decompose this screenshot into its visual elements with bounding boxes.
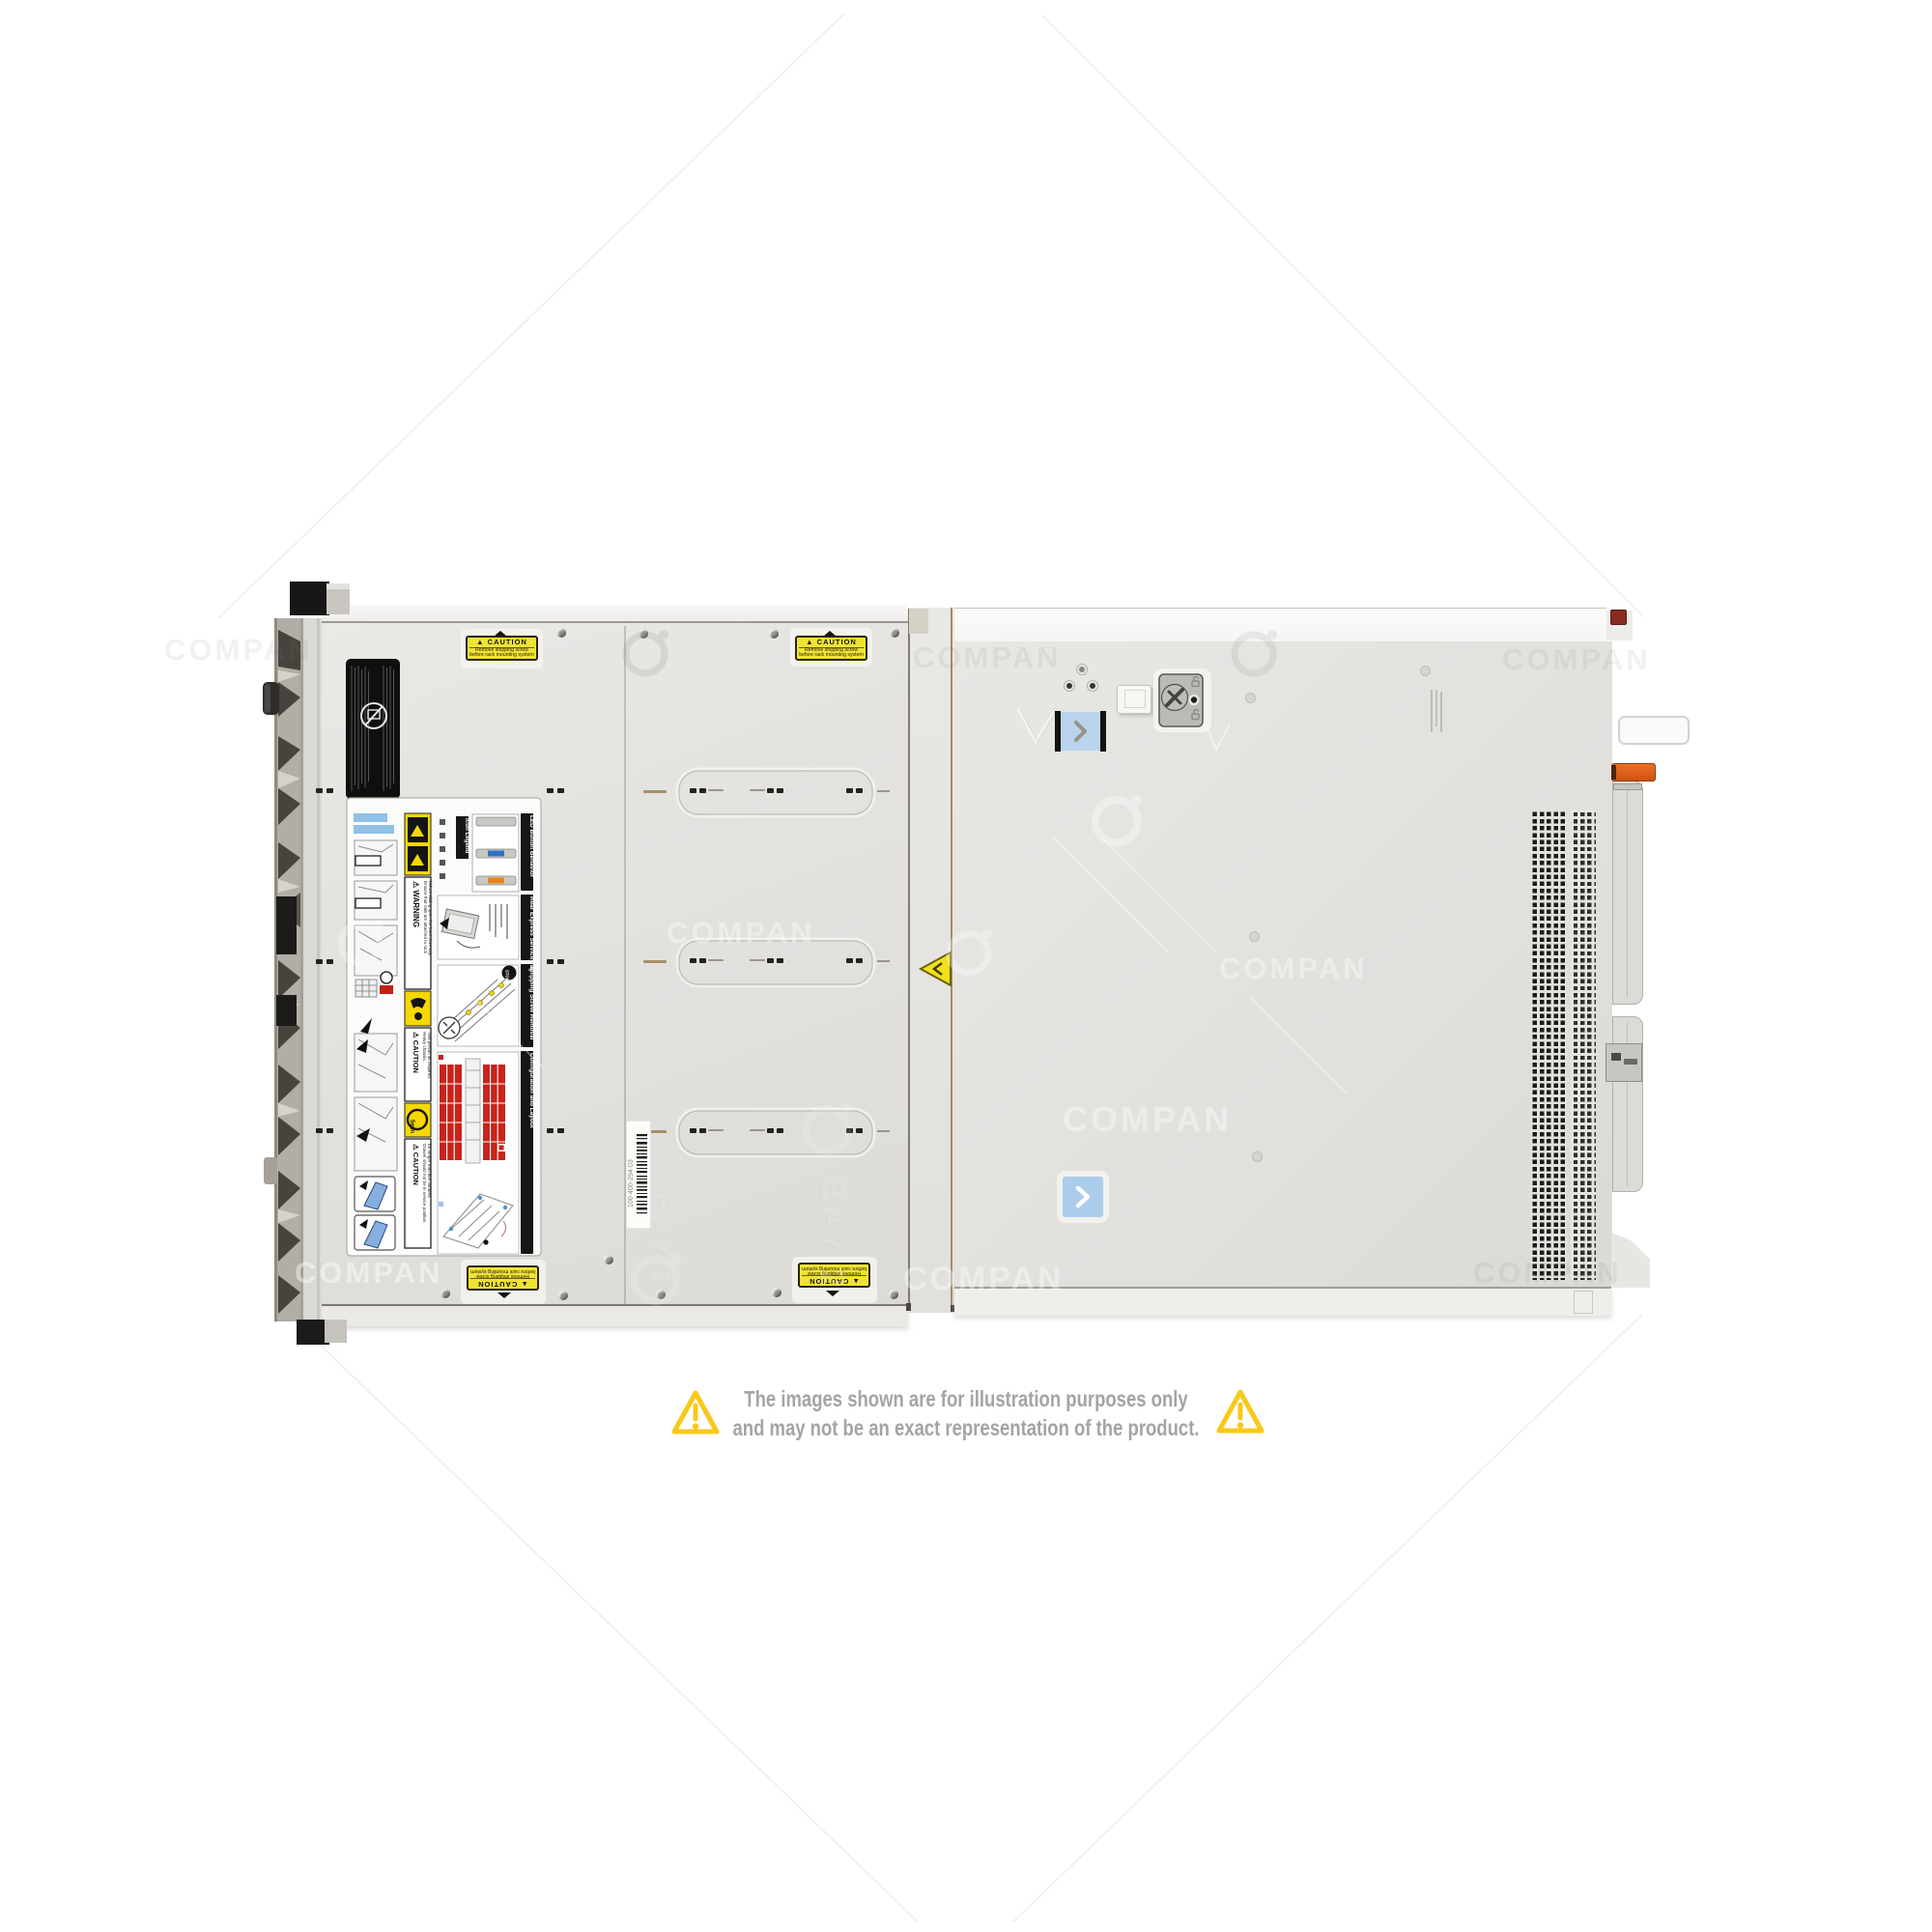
svg-text:Ensure that rails are attached: Ensure that rails are attached to rack	[423, 881, 428, 954]
svg-text:⚠ CAUTION: ⚠ CAUTION	[412, 1032, 420, 1073]
svg-text:Drawer should not be in servic: Drawer should not be in service position	[422, 1144, 427, 1223]
svg-text:Icon Legend: Icon Legend	[464, 818, 470, 854]
svg-text:LED Button Behavior: LED Button Behavior	[528, 815, 535, 878]
svg-text:Rear Express Service Tag: Rear Express Service Tag	[528, 896, 535, 972]
svg-text:Configuration and Layout: Configuration and Layout	[528, 1053, 535, 1129]
svg-text:Two person lift required.: Two person lift required.	[427, 1032, 432, 1079]
svg-text:⚠ CAUTION: ⚠ CAUTION	[412, 1144, 420, 1185]
svg-text:⚠ WARNING: ⚠ WARNING	[412, 881, 420, 927]
svg-text:for longer than five minutes.: for longer than five minutes.	[427, 1144, 432, 1199]
svg-text:before sliding open the hard d: before sliding open the hard drive bay.	[428, 881, 433, 956]
svg-text:Shipping Screw Removal: Shipping Screw Removal	[528, 966, 535, 1040]
svg-text:STOP: STOP	[505, 970, 510, 981]
svg-text:100-400-294-03: 100-400-294-03	[628, 1159, 635, 1207]
svg-text:5min: 5min	[409, 1120, 414, 1133]
svg-text:Heavy chassis.: Heavy chassis.	[422, 1032, 427, 1062]
